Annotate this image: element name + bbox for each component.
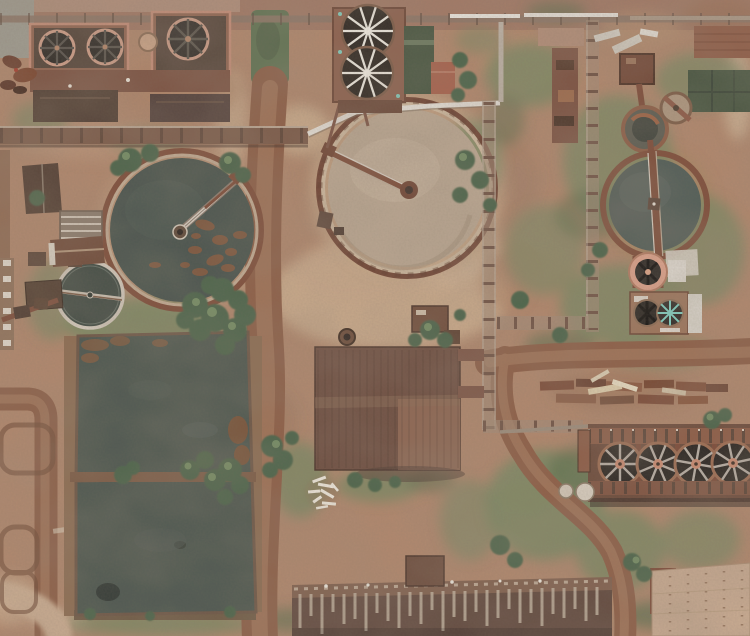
hub-dot: [694, 462, 698, 466]
roof-corrugation: [318, 350, 458, 468]
aux-dot: [673, 105, 679, 111]
white-speck: [126, 78, 130, 82]
teal-fitting: [338, 12, 342, 16]
axial-fan: [40, 31, 74, 65]
train-shadow: [590, 498, 750, 507]
rim-box: [334, 227, 344, 235]
plank: [540, 380, 574, 390]
white-cabinet: [668, 260, 686, 282]
aerial-photo: [0, 0, 750, 636]
arm-machinery: [34, 297, 49, 309]
machinery-detail: [554, 116, 574, 126]
small-shed: [28, 252, 46, 266]
hub-dot: [731, 461, 735, 465]
lawn-shade: [256, 20, 280, 60]
deck-skirt: [338, 100, 402, 113]
ring-fan: [629, 253, 667, 291]
box-mottle: [660, 328, 680, 332]
connector-walkway: [458, 386, 484, 398]
small-tank: [559, 484, 573, 498]
dark-shed: [150, 94, 230, 122]
fan-motor: [139, 33, 157, 51]
small-tank: [576, 483, 594, 501]
plank: [706, 384, 728, 392]
ridge-speck: [366, 583, 369, 586]
dark-shed: [33, 90, 118, 122]
ne-box: [538, 28, 584, 46]
teal-fitting: [396, 94, 400, 98]
tank-hatch: [626, 58, 636, 64]
water-sheen: [619, 172, 671, 212]
train-end-gear: [578, 430, 590, 472]
red-panels: [431, 62, 455, 94]
edge-pipe-bridge: [0, 258, 14, 350]
plank: [556, 394, 596, 404]
tank-center: [344, 334, 351, 341]
plank: [678, 396, 708, 405]
white-gable: [48, 243, 55, 265]
red-scrap-bit: [14, 68, 18, 72]
basin-north: [404, 26, 434, 94]
machinery-detail: [558, 90, 574, 102]
hub-dot: [405, 186, 413, 194]
annex-speck: [416, 310, 426, 315]
clarifier-center: [316, 100, 495, 276]
white-blade-fan: [341, 47, 393, 99]
square-tank: [620, 54, 654, 84]
hub-dot: [618, 462, 622, 466]
hub-dot: [652, 202, 655, 205]
hub-dot: [177, 229, 183, 235]
white-panel: [688, 294, 702, 333]
top-pale-path: [0, 0, 240, 12]
warehouse-tan-southeast: [650, 563, 750, 636]
teal-fitting: [338, 50, 342, 54]
plank: [600, 395, 634, 404]
aerial-photo-frame: [0, 0, 750, 636]
roof-bottom-shade: [292, 628, 612, 636]
ridge-speck: [499, 580, 502, 583]
plank: [638, 394, 674, 404]
plank: [644, 380, 674, 389]
white-speck: [68, 84, 72, 88]
axial-fan: [168, 19, 208, 59]
basin-bar: [404, 40, 434, 45]
ridge-speck: [324, 584, 328, 588]
tower-platform: [30, 70, 230, 92]
ridge-speck: [450, 580, 454, 584]
tan-roof: [652, 563, 750, 636]
teal-fan: [657, 300, 683, 326]
axial-fan: [88, 30, 122, 64]
machinery-detail: [556, 60, 574, 70]
hub-dot: [656, 462, 660, 466]
ridge-speck: [538, 579, 541, 582]
rooftop-annex: [406, 556, 444, 586]
rack-b: [497, 316, 589, 330]
water-sheen: [125, 180, 205, 240]
small-hub: [87, 292, 93, 298]
edge-rust-streak: [0, 150, 10, 258]
connector-walkway: [458, 349, 484, 361]
